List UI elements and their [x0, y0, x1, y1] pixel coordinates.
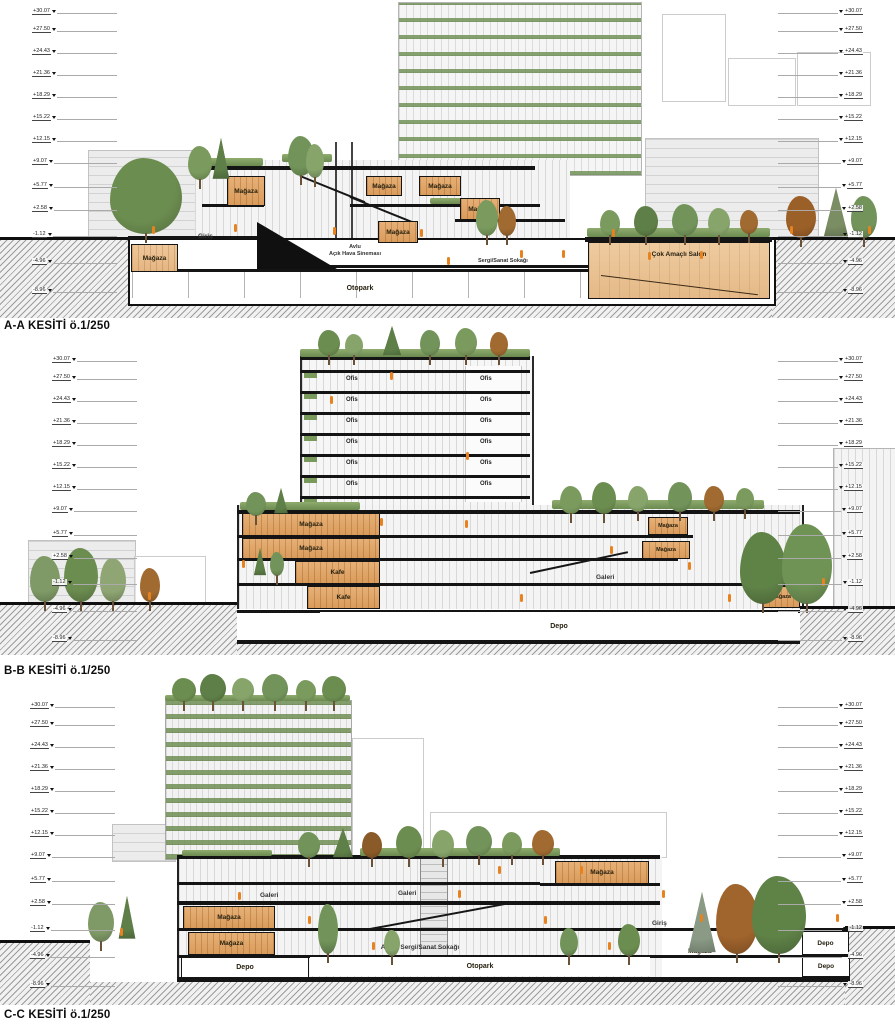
- elevation-marker: +18.29: [778, 786, 863, 793]
- human-figure: [148, 592, 151, 600]
- elevation-marker: -1.12: [778, 579, 863, 586]
- human-figure: [648, 252, 651, 260]
- elevation-marker: +2.58: [32, 205, 117, 212]
- elevation-marker: -1.12: [52, 579, 137, 586]
- room-label-ofis: Ofis: [480, 481, 492, 487]
- room-magaza: Mağaza: [642, 541, 690, 559]
- human-figure: [120, 928, 123, 936]
- room-label: Mağaza: [372, 183, 395, 190]
- tree: [560, 928, 578, 956]
- elevation-marker: +9.07: [778, 158, 863, 165]
- tree: [740, 210, 758, 234]
- human-figure: [420, 229, 423, 237]
- human-figure: [580, 866, 583, 874]
- human-figure: [662, 890, 665, 898]
- room-label-ofis: Ofis: [346, 418, 358, 424]
- tree: [592, 482, 616, 514]
- human-figure: [562, 250, 565, 258]
- room-cok-amacli-salon: Çok Amaçlı Salon: [588, 242, 770, 299]
- room-magaza: Mağaza: [555, 861, 649, 884]
- elevation-marker: -4.96: [778, 952, 863, 959]
- human-figure: [447, 257, 450, 265]
- tree: [384, 930, 400, 956]
- elevation-marker: -8.96: [778, 287, 863, 294]
- elevation-marker: +15.22: [52, 462, 137, 469]
- human-figure: [380, 518, 383, 526]
- human-figure: [498, 866, 501, 874]
- room-magaza: Mağaza: [183, 906, 275, 929]
- section-bb-title: B-B KESİTİ ö.1/250: [4, 665, 111, 677]
- elevation-marker: +30.07: [778, 702, 863, 709]
- human-figure: [544, 916, 547, 924]
- elevation-marker: +15.22: [30, 808, 115, 815]
- tree: [420, 330, 440, 356]
- label-avlu-sergi: Avlu - Sergi/Sanat Sokağı: [330, 936, 510, 954]
- section-aa-title: A-A KESİTİ ö.1/250: [4, 320, 110, 332]
- tree: [618, 924, 640, 956]
- elevation-marker: +18.29: [778, 440, 863, 447]
- human-figure: [700, 251, 703, 259]
- elevation-marker: -1.12: [778, 925, 863, 932]
- label-otopark: Otopark: [140, 277, 580, 295]
- room-label-ofis: Ofis: [480, 439, 492, 445]
- elevation-marker: +9.07: [52, 506, 137, 513]
- label-avlu: Avlu Açık Hava Sineması: [310, 244, 400, 258]
- elevation-marker: -1.12: [30, 925, 115, 932]
- tree: [634, 206, 658, 236]
- elevation-marker: +21.36: [32, 70, 117, 77]
- elevation-marker: +9.07: [778, 852, 863, 859]
- room-depo: Depo: [181, 957, 309, 978]
- elevation-marker: -4.96: [32, 258, 117, 265]
- elevation-marker: +12.15: [778, 484, 863, 491]
- tree: [708, 208, 730, 236]
- elevation-marker: -4.96: [778, 606, 863, 613]
- room-kafe: Kafe: [307, 586, 380, 609]
- elevation-marker: +5.77: [52, 530, 137, 537]
- tree: [110, 158, 182, 234]
- human-figure: [465, 520, 468, 528]
- elevation-marker: -8.96: [52, 635, 137, 642]
- elevation-marker: +5.77: [778, 876, 863, 883]
- room-label: Mağaza: [143, 255, 166, 262]
- elevation-marker: +30.07: [30, 702, 115, 709]
- tree: [88, 902, 114, 942]
- human-figure: [308, 916, 311, 924]
- tree: [752, 876, 806, 954]
- elevation-marker: +18.29: [778, 92, 863, 99]
- elevation-marker: +9.07: [32, 158, 117, 165]
- tree: [270, 552, 284, 576]
- elevation-marker: +15.22: [778, 808, 863, 815]
- elevation-marker: +18.29: [52, 440, 137, 447]
- elevation-marker: +24.43: [778, 742, 863, 749]
- green-facade-tower: [165, 700, 352, 860]
- tree: [502, 832, 522, 856]
- tree: [396, 826, 422, 858]
- tree: [600, 210, 620, 236]
- human-figure: [728, 594, 731, 602]
- elevation-marker: +27.50: [30, 720, 115, 727]
- elevation-marker: +30.07: [32, 8, 117, 15]
- elevation-marker: +18.29: [30, 786, 115, 793]
- human-figure: [152, 226, 155, 234]
- tree: [345, 334, 363, 356]
- elevation-marker: +9.07: [30, 852, 115, 859]
- elevation-marker: +9.07: [778, 506, 863, 513]
- room-magaza: Mağaza: [366, 176, 402, 196]
- elevation-marker: +15.22: [778, 462, 863, 469]
- tree: [560, 486, 582, 514]
- tree: [704, 486, 724, 512]
- elevation-marker: +18.29: [32, 92, 117, 99]
- elevation-marker: +27.50: [778, 720, 863, 727]
- tree: [740, 532, 786, 604]
- human-figure: [458, 890, 461, 898]
- elevation-marker: +2.58: [52, 553, 137, 560]
- elevation-marker: +24.43: [30, 742, 115, 749]
- elevation-marker: +5.77: [30, 876, 115, 883]
- elevation-marker: +2.58: [778, 205, 863, 212]
- elevation-marker: +5.77: [32, 182, 117, 189]
- tree: [200, 674, 226, 702]
- elevation-marker: -4.96: [30, 952, 115, 959]
- room-label-ofis: Ofis: [346, 376, 358, 382]
- human-figure: [612, 229, 615, 237]
- tree: [466, 826, 492, 856]
- tree: [318, 904, 338, 954]
- tree: [490, 332, 508, 356]
- elevation-marker: +12.15: [52, 484, 137, 491]
- tree: [672, 204, 698, 236]
- room-label-ofis: Ofis: [346, 397, 358, 403]
- elevation-marker: +30.07: [52, 356, 137, 363]
- elevation-marker: +24.43: [778, 48, 863, 55]
- elevation-marker: -1.12: [778, 231, 863, 238]
- elevation-marker: +5.77: [778, 530, 863, 537]
- tree: [628, 486, 648, 512]
- elevation-marker: +30.07: [778, 8, 863, 15]
- tree: [668, 482, 692, 512]
- elevation-marker: -8.96: [32, 287, 117, 294]
- elevation-marker: +27.50: [52, 374, 137, 381]
- room-magaza: Mağaza: [131, 244, 178, 272]
- room-magaza: Mağaza: [242, 513, 380, 536]
- elevation-marker: +15.22: [32, 114, 117, 121]
- elevation-marker: -1.12: [32, 231, 117, 238]
- human-figure: [608, 942, 611, 950]
- elevation-marker: +24.43: [778, 396, 863, 403]
- human-figure: [372, 942, 375, 950]
- elevation-marker: +12.15: [30, 830, 115, 837]
- room-label: Mağaza: [428, 183, 451, 190]
- room-magaza: Mağaza: [227, 176, 265, 206]
- tree: [246, 492, 266, 516]
- tree: [432, 830, 454, 858]
- elevation-marker: +27.50: [778, 374, 863, 381]
- human-figure: [520, 250, 523, 258]
- elevation-marker: +21.36: [30, 764, 115, 771]
- room-magaza: Mağaza: [242, 538, 380, 559]
- human-figure: [836, 914, 839, 922]
- tree: [232, 678, 254, 702]
- room-magaza: Mağaza: [648, 517, 688, 535]
- elevation-marker: +21.36: [778, 418, 863, 425]
- room-label: Mağaza: [234, 188, 257, 195]
- label-galeri: Galeri: [596, 566, 614, 584]
- room-label-ofis: Ofis: [480, 418, 492, 424]
- tree: [736, 488, 754, 510]
- elevation-marker: +2.58: [778, 553, 863, 560]
- room-label: Çok Amaçlı Salon: [589, 251, 769, 258]
- label-giris: Giriş: [198, 225, 213, 243]
- label-giris: Giriş: [652, 912, 667, 930]
- room-kafe: Kafe: [295, 561, 380, 584]
- label-galeri: Galeri: [260, 884, 278, 902]
- tree: [262, 674, 288, 702]
- room-magaza: Mağaza: [419, 176, 461, 196]
- elevation-marker: +5.77: [778, 182, 863, 189]
- elevation-marker: +21.36: [778, 764, 863, 771]
- elevation-marker: +15.22: [778, 114, 863, 121]
- background-building-outline: [662, 14, 726, 102]
- human-figure: [242, 560, 245, 568]
- elevation-marker: +2.58: [778, 899, 863, 906]
- room-label: Mağaza: [386, 229, 409, 236]
- elevation-marker: +12.15: [778, 136, 863, 143]
- tree: [498, 206, 516, 236]
- tree: [322, 676, 346, 702]
- elevation-marker: +21.36: [52, 418, 137, 425]
- elevation-marker: +2.58: [30, 899, 115, 906]
- human-figure: [238, 892, 241, 900]
- elevation-marker: +12.15: [32, 136, 117, 143]
- human-figure: [333, 227, 336, 235]
- elevation-marker: +12.15: [778, 830, 863, 837]
- office-floor-labels: OfisOfis OfisOfis OfisOfis OfisOfis Ofis…: [300, 366, 530, 506]
- room-label-ofis: Ofis: [346, 460, 358, 466]
- room-label-ofis: Ofis: [346, 481, 358, 487]
- elevation-marker: -8.96: [778, 981, 863, 988]
- room-depo: Depo: [320, 612, 798, 640]
- drawing-canvas: Mağaza Mağaza Mağaza Mağaza Mağaza Mağaz…: [0, 0, 895, 1024]
- elevation-marker: -4.96: [52, 606, 137, 613]
- tree: [298, 832, 320, 858]
- human-figure: [520, 594, 523, 602]
- tree: [318, 330, 340, 356]
- elevation-marker: +27.50: [32, 26, 117, 33]
- tree: [362, 832, 382, 858]
- human-figure: [330, 396, 333, 404]
- elevation-marker: +21.36: [778, 70, 863, 77]
- tree: [532, 830, 554, 856]
- room-label-ofis: Ofis: [480, 397, 492, 403]
- tree: [476, 200, 498, 236]
- elevation-marker: +27.50: [778, 26, 863, 33]
- elevation-marker: +24.43: [52, 396, 137, 403]
- human-figure: [390, 372, 393, 380]
- room-otopark: Otopark: [310, 957, 650, 976]
- tree: [455, 328, 477, 356]
- elevation-marker: -4.96: [778, 258, 863, 265]
- background-tower: [398, 2, 642, 176]
- room-label-ofis: Ofis: [480, 460, 492, 466]
- tree: [188, 146, 212, 180]
- human-figure: [466, 452, 469, 460]
- elevation-marker: +24.43: [32, 48, 117, 55]
- tree: [306, 144, 324, 178]
- elevation-marker: +30.07: [778, 356, 863, 363]
- room-magaza: Mağaza: [378, 221, 418, 243]
- human-figure: [234, 224, 237, 232]
- human-figure: [610, 546, 613, 554]
- room-label-ofis: Ofis: [346, 439, 358, 445]
- tree: [172, 678, 196, 702]
- room-depo: Depo: [802, 931, 849, 955]
- label-galeri: Galeri: [398, 882, 416, 900]
- tree: [296, 680, 316, 702]
- section-cc-title: C-C KESİTİ ö.1/250: [4, 1009, 111, 1021]
- elevation-marker: -8.96: [30, 981, 115, 988]
- human-figure: [688, 562, 691, 570]
- human-figure: [868, 226, 871, 234]
- room-magaza: Mağaza: [188, 932, 275, 955]
- human-figure: [700, 914, 703, 922]
- room-label-ofis: Ofis: [480, 376, 492, 382]
- elevation-marker: -8.96: [778, 635, 863, 642]
